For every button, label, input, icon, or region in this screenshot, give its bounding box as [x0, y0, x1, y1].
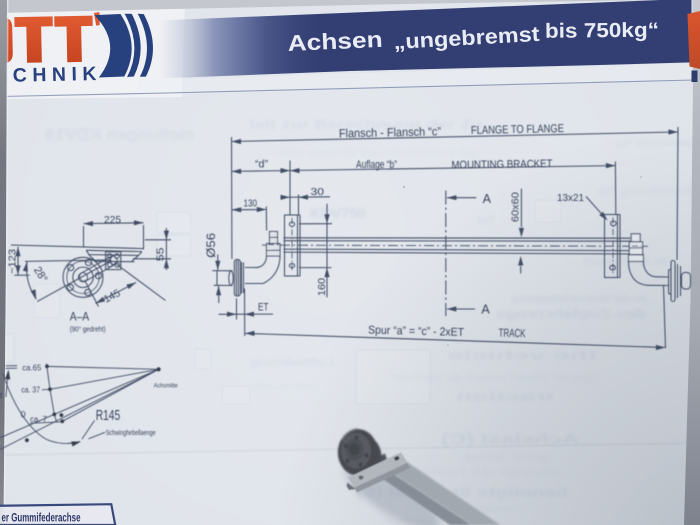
svg-text:Bezeichnung Typ: Bezeichnung Typ — [598, 184, 693, 198]
svg-text:30: 30 — [311, 186, 325, 198]
svg-text:160: 160 — [316, 278, 328, 296]
svg-text:An der Hinterach: An der Hinterach — [583, 257, 668, 268]
svg-text:A–A: A–A — [70, 309, 90, 323]
svg-text:Achslast (C): Achslast (C) — [441, 431, 579, 448]
svg-text:Ø56: Ø56 — [206, 233, 218, 258]
svg-text:A: A — [483, 192, 492, 206]
svg-text:0: 0 — [21, 410, 26, 420]
svg-text:An der Hinterachsfederung: An der Hinterachsfederung — [512, 293, 647, 305]
svg-text:er Gummifederachse: er Gummifederachse — [2, 513, 81, 525]
svg-text:Achsen: Achsen — [287, 27, 383, 56]
svg-text:R145: R145 — [96, 408, 121, 424]
svg-text:Achsmitte: Achsmitte — [154, 383, 178, 390]
svg-text:KDV750: KDV750 — [310, 205, 366, 221]
svg-text:ET: ET — [258, 301, 269, 313]
svg-text:ca. 37: ca. 37 — [21, 386, 40, 395]
svg-text:ca. 7: ca. 7 — [30, 415, 48, 424]
svg-text:130: 130 — [244, 198, 258, 210]
svg-text:data sheet for the calculation: data sheet for the calculation a dist — [278, 148, 478, 159]
svg-text:the vehicle: the vehicle — [447, 347, 597, 363]
svg-text:nleitungen KDV19: nleitungen KDV19 — [45, 125, 195, 144]
svg-text:Auflage “b”: Auflage “b” — [356, 159, 397, 171]
svg-text:Spur “a” = “c” - 2xET: Spur “a” = “c” - 2xET — [368, 325, 464, 340]
svg-text:Schwinghebellaenge: Schwinghebellaenge — [106, 430, 156, 437]
svg-text:A: A — [481, 303, 490, 317]
svg-text:(90° gedreht): (90° gedreht) — [70, 324, 106, 333]
svg-text:~123: ~123 — [6, 249, 18, 274]
svg-text:gekreuzte: gekreuzte — [251, 381, 319, 391]
svg-text:225: 225 — [104, 214, 121, 226]
svg-text:13x21: 13x21 — [557, 192, 584, 204]
svg-text:Querschnitt Typ: Querschnitt Typ — [615, 138, 695, 149]
svg-text:axle load: axle load — [465, 452, 550, 464]
svg-text:bis 750kg“: bis 750kg“ — [545, 19, 659, 43]
svg-text:des Zugfahrzeugs: des Zugfahrzeugs — [496, 306, 646, 321]
svg-text:FLANGE TO FLANGE: FLANGE TO FLANGE — [471, 123, 564, 137]
svg-text:Flansch - Flansch “c”: Flansch - Flansch “c” — [339, 124, 441, 140]
svg-text:60x60: 60x60 — [510, 192, 522, 222]
svg-text:ca.65: ca.65 — [22, 363, 42, 372]
svg-text:TRACK: TRACK — [498, 328, 526, 341]
svg-text:ECHNIK: ECHNIK — [0, 63, 102, 87]
svg-text:MOUNTING BRACKET: MOUNTING BRACKET — [451, 158, 552, 171]
svg-text:“d”: “d” — [255, 159, 268, 171]
svg-text:55: 55 — [155, 247, 167, 261]
svg-text:traction: traction — [456, 389, 554, 404]
svg-text:Luftfederung: Luftfederung — [250, 355, 334, 369]
svg-text:Typ: Typ — [476, 214, 495, 226]
